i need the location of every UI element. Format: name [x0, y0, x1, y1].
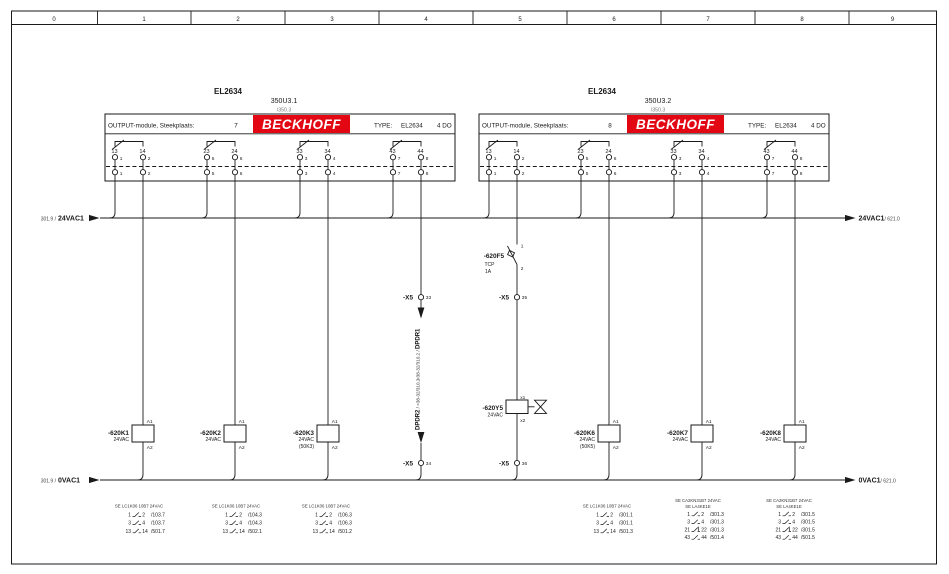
terminal-circle [764, 170, 769, 175]
xref-ref: /501.7 [151, 529, 165, 535]
coil-terminal-a1: A1 [332, 419, 338, 425]
breaker-terminal: 2 [521, 266, 524, 272]
pin-number: 3 [305, 156, 308, 162]
pin-number: 5 [586, 171, 589, 177]
breaker-terminal: 1 [521, 244, 524, 250]
xref-pin: 44 [701, 535, 707, 541]
pin-number: 8 [426, 156, 429, 162]
module-el2634-2: EL2634 350U3.2 /350.3 BECKHOFF OUTPUT-mo… [479, 87, 829, 181]
pin-number: 5 [212, 156, 215, 162]
relay-contact-pair: 23 24 5 6 5 6 [203, 140, 242, 177]
xref-pin: 4 [329, 521, 332, 527]
coil-voltage: 24VAC [114, 437, 130, 443]
xref-pin: 13 [312, 529, 318, 535]
xref-pin: 4 [792, 520, 795, 526]
terminal-circle [606, 170, 611, 175]
xref-pin: 3 [778, 520, 781, 526]
relay-contact-pair: 13 14 1 2 1 2 [111, 140, 150, 177]
type-label: TYPE: [374, 123, 392, 130]
xref-header: SE LA4KE1E [685, 504, 711, 509]
xref-pin: 1 [596, 512, 599, 518]
coil-note: (50K5) [580, 444, 595, 450]
valve-symbol [535, 407, 547, 414]
pin-number: 1 [494, 171, 497, 177]
coil-box [598, 425, 620, 442]
type-value: EL2634 [401, 123, 423, 130]
coil-note: (50K3) [299, 444, 314, 450]
module-el2634-1: EL2634 350U3.1 /350.3 BECKHOFF OUTPUT-mo… [105, 87, 455, 181]
bus-source-ref: 301.9 / [41, 478, 57, 484]
xref-pin: 21 [684, 527, 690, 533]
xref-pin: 1 [128, 512, 131, 518]
xref-ref: /501.4 [710, 535, 724, 541]
coil-tag: -620K3 [293, 430, 314, 437]
terminal-circle [390, 155, 395, 160]
contact-bracket [671, 140, 702, 150]
pin-number: 4 [707, 171, 710, 177]
xref-ref: /301.1 [619, 512, 633, 518]
xref-pin: 43 [684, 535, 690, 541]
pin-number: 2 [148, 156, 151, 162]
coil-voltage: 24VAC [580, 437, 596, 443]
xref-table-k6: SE LC1K06 10B7 24VAC 1 2 /301.1 3 4 /301… [583, 504, 633, 535]
terminal-circle [204, 170, 209, 175]
x5-label: -X5 [499, 295, 509, 302]
xref-contact-symbol [133, 513, 142, 517]
pin-number: 7 [772, 156, 775, 162]
xref-contact-symbol [230, 529, 239, 533]
type-value: EL2634 [775, 123, 797, 130]
coil-tag: -620K7 [667, 430, 688, 437]
device-ref: /350.3 [651, 108, 666, 114]
xref-contact-symbol [692, 512, 701, 516]
xref-table-k7: SE CA2KN31B7 24VAC SE LA4KE1E 1 2 /301.3… [675, 498, 724, 541]
ruler-cell-label: 4 [424, 17, 428, 23]
terminal-circle [671, 155, 676, 160]
device-tag: 350U3.1 [271, 98, 298, 105]
xref-table-k8: SE CA2KN31B7 24VAC SE LA4KE1E 1 2 /301.5… [766, 498, 815, 541]
xref-pin: 4 [239, 521, 242, 527]
xref-pin: 22 [701, 527, 707, 533]
terminal-circle [578, 155, 583, 160]
terminal-circle [232, 155, 237, 160]
ruler-cell-label: 0 [52, 17, 56, 23]
terminal-x5-35: -X5 35 [499, 295, 527, 302]
terminal-x5-33: -X5 33 [403, 295, 431, 302]
xref-pin: 2 [701, 512, 704, 518]
xref-pin: 3 [315, 521, 318, 527]
xref-pin: 21 [775, 527, 781, 533]
xref-table-k1: SE LC1K06 10B7 24VAC 1 2 /103.7 3 4 /103… [115, 504, 165, 535]
xref-header: SE LC1K06 10B7 24VAC [115, 504, 163, 509]
terminal-circle [232, 170, 237, 175]
ruler-cell-label: 8 [800, 17, 804, 23]
breaker-type: TCP [485, 262, 496, 268]
slot-number: 8 [608, 123, 612, 130]
coil-tag: -620K6 [574, 430, 595, 437]
terminal-circle [699, 170, 704, 175]
contact-bracket [297, 140, 328, 150]
xref-ref: /301.5 [801, 512, 815, 518]
xref-ref: /104.3 [248, 512, 262, 518]
xref-header: SE LA4KE1E [776, 504, 802, 509]
xref-pin: 3 [596, 521, 599, 527]
part-label: EL2634 [588, 87, 617, 96]
xref-pin: 4 [142, 521, 145, 527]
xref-contact-symbol [783, 520, 792, 524]
terminal-circle [325, 155, 330, 160]
wire [604, 442, 610, 480]
pin-number: 4 [333, 171, 336, 177]
contact-bracket [764, 140, 795, 150]
xref-contact-symbol [133, 529, 142, 533]
xref-ref: /103.7 [151, 512, 165, 518]
coil-terminal-a2: A2 [332, 445, 338, 451]
pin-number: 4 [333, 156, 336, 162]
xref-table-k2: SE LC1K06 10B7 24VAC 1 2 /104.3 3 4 /104… [212, 504, 262, 535]
pin-number: 6 [240, 156, 243, 162]
bus-arrow [89, 477, 100, 483]
xref-contact-symbol [601, 529, 610, 533]
pin-number: 3 [679, 156, 682, 162]
contact-bracket [486, 140, 517, 150]
xref-header: SE CA2KN31B7 24VAC [675, 498, 721, 503]
valve-620y5: x1 x2 -620Y5 24VAC [482, 395, 546, 424]
io-count: 4 DO [811, 123, 826, 130]
pin-number: 1 [120, 171, 123, 177]
x5-circle [514, 295, 519, 300]
xref-contact-symbol [783, 512, 792, 516]
pin-number: 6 [614, 171, 617, 177]
xref-header: SE CA2KN31B7 24VAC [766, 498, 812, 503]
terminal-circle [486, 155, 491, 160]
coil-terminal-a1: A1 [613, 419, 619, 425]
signal-arrow-icon [418, 308, 425, 319]
xref-contact-symbol [230, 513, 239, 517]
xref-ref: /301.5 [801, 527, 815, 533]
part-label: EL2634 [214, 87, 243, 96]
wire [512, 466, 518, 480]
xref-ref: /301.3 [710, 512, 724, 518]
io-count: 4 DO [437, 123, 452, 130]
pin-number: 4 [707, 156, 710, 162]
terminal-circle [325, 170, 330, 175]
ruler-cell-label: 2 [236, 17, 240, 23]
xref-pin: 2 [329, 512, 332, 518]
xref-ref: /502.1 [248, 529, 262, 535]
xref-pin: 1 [225, 512, 228, 518]
valve-symbol [535, 400, 547, 407]
xref-contact-symbol [320, 521, 329, 525]
xref-pin: 4 [610, 521, 613, 527]
pin-number: 2 [522, 171, 525, 177]
coil-620k6: A1 A2 -620K6 24VAC (50K5) [574, 419, 620, 451]
schematic-canvas: 0 1 2 3 4 5 6 7 8 9 301.9 / [0, 0, 949, 574]
x5-pin: 36 [522, 461, 528, 467]
pin-number: 5 [212, 171, 215, 177]
logo-text: BECKHOFF [262, 117, 341, 132]
pin-number: 2 [148, 171, 151, 177]
coil-terminal-a2: A2 [706, 445, 712, 451]
xref-pin: 2 [610, 512, 613, 518]
pin-number: 7 [398, 171, 401, 177]
pin-number: 7 [772, 171, 775, 177]
x5-label: -X5 [403, 295, 413, 302]
xref-contact-symbol-nc [783, 527, 792, 532]
bus-name: 24VAC1 [859, 216, 885, 223]
relay-contact-pair: 43 44 7 8 7 8 [389, 140, 428, 177]
xref-pin: 4 [701, 520, 704, 526]
wire [138, 442, 144, 480]
terminal-circle [112, 155, 117, 160]
x5-circle [514, 460, 519, 465]
terminal-circle [514, 170, 519, 175]
relay-contact-pair: 33 34 3 4 3 4 [670, 140, 709, 177]
terminal-circle [578, 170, 583, 175]
slot-number: 7 [234, 123, 238, 130]
xref-pin: 2 [792, 512, 795, 518]
coil-620k1: A1 A2 -620K1 24VAC [108, 419, 154, 451]
coil-voltage: 24VAC [299, 437, 315, 443]
coil-terminal-a1: A1 [239, 419, 245, 425]
bus-arrow [845, 477, 856, 483]
xref-ref: /106.3 [338, 521, 352, 527]
schematic-page: 0 1 2 3 4 5 6 7 8 9 301.9 / [0, 0, 949, 574]
xref-ref: /301.5 [801, 520, 815, 526]
terminal-circle [792, 170, 797, 175]
contact-bracket [390, 140, 421, 150]
coil-box [784, 425, 806, 442]
module-header-text: OUTPUT-module, Steekplaats: [108, 123, 195, 130]
x5-label: -X5 [499, 461, 509, 468]
xref-contact-symbol [692, 535, 701, 539]
device-ref: /350.3 [277, 108, 292, 114]
frame-border [12, 11, 937, 564]
terminal-circle [699, 155, 704, 160]
terminal-circle [418, 170, 423, 175]
xref-table-k3: SE LC1K06 10B7 24VAC 1 2 /106.3 3 4 /106… [302, 504, 352, 535]
xref-header: SE LC1K06 10B7 24VAC [583, 504, 631, 509]
relay-contact-pair: 33 34 3 4 3 4 [296, 140, 335, 177]
signal-arrow-icon [418, 432, 425, 443]
xref-ref: /301.3 [710, 520, 724, 526]
bus-source-ref: 301.9 / [41, 216, 57, 222]
coil-terminal-a1: A1 [706, 419, 712, 425]
xref-contact-symbol [601, 513, 610, 517]
terminal-circle [140, 170, 145, 175]
coil-box [224, 425, 246, 442]
ruler-cell-label: 6 [612, 17, 616, 23]
coil-voltage: 24VAC [206, 437, 222, 443]
pin-number: 8 [426, 171, 429, 177]
pin-number: 7 [398, 156, 401, 162]
pin-number: 2 [522, 156, 525, 162]
x5-pin: 35 [522, 295, 528, 301]
coil-terminal-a2: A2 [239, 445, 245, 451]
page-frame: 0 1 2 3 4 5 6 7 8 9 [12, 11, 937, 564]
coil-620k7: A1 A2 -620K7 24VAC [667, 419, 713, 451]
pin-number: 3 [305, 171, 308, 177]
pin-number: 1 [120, 156, 123, 162]
pin-number: 6 [614, 156, 617, 162]
xref-pin: 13 [222, 529, 228, 535]
pin-number: 6 [240, 171, 243, 177]
pin-number: 1 [494, 156, 497, 162]
coil-terminal-a2: A2 [147, 445, 153, 451]
xref-contact-symbol [601, 521, 610, 525]
coil-tag: -620K1 [108, 430, 129, 437]
coil-terminal-a1: A1 [147, 419, 153, 425]
xref-contact-symbol [783, 535, 792, 539]
terminal-circle [606, 155, 611, 160]
xref-ref: /103.7 [151, 521, 165, 527]
xref-ref: /104.3 [248, 521, 262, 527]
wire [230, 442, 236, 480]
xref-pin: 2 [142, 512, 145, 518]
x5-pin: 33 [426, 295, 432, 301]
bus-arrow [845, 215, 856, 221]
bus-name: 0VAC1 [859, 478, 881, 485]
xref-pin: 3 [128, 521, 131, 527]
terminal-circle [764, 155, 769, 160]
coil-terminal-a2: A2 [799, 445, 805, 451]
x5-pin: 34 [426, 461, 432, 467]
signal-label-dpdr2: DPDR2 / =38-32/310.2 [415, 378, 421, 430]
type-label: TYPE: [748, 123, 766, 130]
xref-pin: 44 [792, 535, 798, 541]
xref-pin: 13 [593, 529, 599, 535]
xref-pin: 14 [239, 529, 245, 535]
contact-bracket [578, 140, 609, 150]
coil-voltage: 24VAC [673, 437, 689, 443]
xref-pin: 1 [315, 512, 318, 518]
pin-number: 8 [800, 156, 803, 162]
terminal-x5-34: -X5 34 [403, 460, 431, 467]
x5-circle [418, 295, 423, 300]
pin-number: 8 [800, 171, 803, 177]
breaker-620f5: 1 2 -620F5 TCP 1A [484, 244, 524, 276]
xref-ref: /301.1 [619, 521, 633, 527]
bus-name: 24VAC1 [58, 216, 84, 223]
xref-pin: 14 [329, 529, 335, 535]
coil-voltage: 24VAC [766, 437, 782, 443]
terminal-circle [140, 155, 145, 160]
xref-pin: 1 [778, 512, 781, 518]
xref-contact-symbol-nc [692, 527, 701, 532]
xref-pin: 14 [610, 529, 616, 535]
coil-tag: -620K8 [760, 430, 781, 437]
coil-tag: -620K2 [200, 430, 221, 437]
terminal-circle [297, 170, 302, 175]
xref-ref: /301.3 [710, 527, 724, 533]
xref-contact-symbol [320, 513, 329, 517]
coil-620k2: A1 A2 -620K2 24VAC [200, 419, 246, 451]
xref-pin: 3 [687, 520, 690, 526]
ruler-cell-label: 7 [706, 17, 710, 23]
relay-contact-pair: 23 24 5 6 5 6 [577, 140, 616, 177]
bus-0vac1: 301.9 / 0VAC1 0VAC1 / 621.0 [41, 477, 896, 485]
terminal-circle [792, 155, 797, 160]
xref-header: SE LC1K06 10B7 24VAC [302, 504, 350, 509]
xref-contact-symbol [133, 521, 142, 525]
pin-number: 3 [679, 171, 682, 177]
breaker-tag: -620F5 [484, 253, 505, 260]
terminal-circle [390, 170, 395, 175]
wire [697, 442, 703, 480]
logo-text: BECKHOFF [636, 117, 715, 132]
terminal-circle [112, 170, 117, 175]
terminal-x5-36: -X5 36 [499, 460, 527, 467]
xref-ref: /501.5 [801, 535, 815, 541]
xref-pin: 1 [687, 512, 690, 518]
x5-label: -X5 [403, 461, 413, 468]
breaker-rating: 1A [485, 269, 492, 275]
xref-pin: 14 [142, 529, 148, 535]
xref-header: SE LC1K06 10B7 24VAC [212, 504, 260, 509]
valve-tag: -620Y5 [482, 405, 503, 412]
ruler-cell-label: 3 [330, 17, 334, 23]
xref-contact-symbol [230, 521, 239, 525]
coil-box [132, 425, 154, 442]
x5-circle [418, 460, 423, 465]
terminal-circle [297, 155, 302, 160]
coil-terminal-a1: A1 [799, 419, 805, 425]
xref-ref: /501.2 [338, 529, 352, 535]
coil-box [317, 425, 339, 442]
xref-pin: 22 [792, 527, 798, 533]
bus-24vac1: 301.9 / 24VAC1 24VAC1 / 621.0 [41, 215, 900, 223]
xref-contact-symbol [320, 529, 329, 533]
relay-contact-pair: 43 44 7 8 7 8 [763, 140, 802, 177]
terminal-circle [418, 155, 423, 160]
wire [323, 442, 329, 480]
ruler-cell-label: 5 [518, 17, 522, 23]
bus-arrow [89, 215, 100, 221]
device-tag: 350U3.2 [645, 98, 672, 105]
contact-bracket [112, 140, 143, 150]
valve-coil-box [506, 400, 528, 414]
bus-name: 0VAC1 [58, 478, 80, 485]
coil-620k8: A1 A2 -620K8 24VAC [760, 419, 806, 451]
valve-terminal: x2 [520, 418, 525, 424]
xref-pin: 3 [225, 521, 228, 527]
xref-pin: 43 [775, 535, 781, 541]
bus-dest-ref: / 621.0 [885, 216, 901, 222]
wire [416, 466, 422, 480]
terminal-circle [514, 155, 519, 160]
xref-pin: 2 [239, 512, 242, 518]
terminal-circle [486, 170, 491, 175]
wire [790, 442, 796, 480]
module-header-text: OUTPUT-module, Steekplaats: [482, 123, 569, 130]
ruler-cell-label: 9 [891, 17, 895, 23]
relay-contact-pair: 13 14 1 2 1 2 [485, 140, 524, 177]
valve-voltage: 24VAC [488, 412, 504, 418]
ruler-cell-label: 1 [142, 17, 146, 23]
xref-ref: /501.3 [619, 529, 633, 535]
signal-label-dpdr1: =38-32/310.2 / DPDR1 [415, 328, 421, 380]
xref-contact-symbol [692, 520, 701, 524]
coil-620k3: A1 A2 -620K3 24VAC (50K3) [293, 419, 339, 451]
signal-dpdr: =38-32/310.2 / DPDR1 DPDR2 / =38-32/310.… [415, 308, 424, 444]
coil-box [691, 425, 713, 442]
terminal-circle [671, 170, 676, 175]
xref-pin: 13 [125, 529, 131, 535]
contact-bracket [204, 140, 235, 150]
pin-number: 5 [586, 156, 589, 162]
coil-terminal-a2: A2 [613, 445, 619, 451]
terminal-circle [204, 155, 209, 160]
